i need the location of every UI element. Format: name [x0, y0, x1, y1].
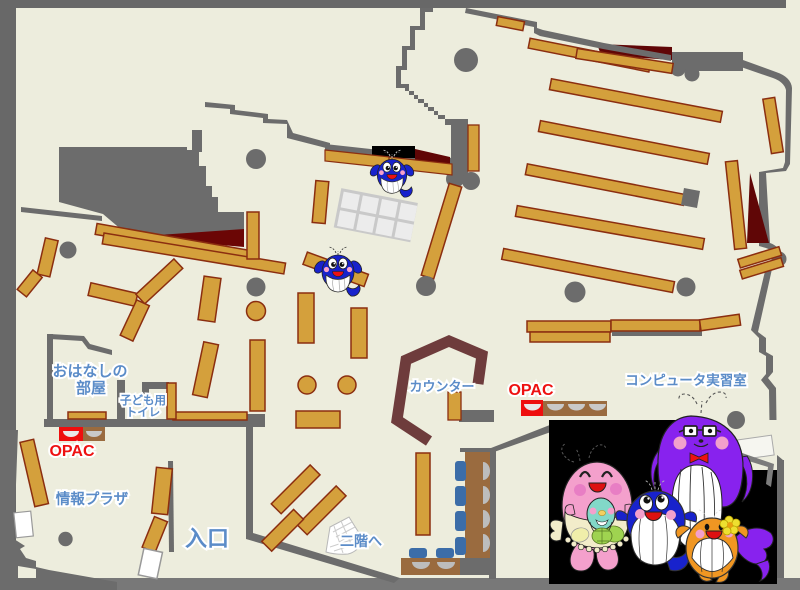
- svg-text:カウンター: カウンター: [409, 379, 474, 394]
- svg-text:子ども用: 子ども用: [120, 394, 166, 407]
- svg-text:OPAC: OPAC: [508, 382, 553, 399]
- svg-text:OPAC: OPAC: [49, 443, 94, 460]
- svg-text:情報プラザ: 情報プラザ: [56, 490, 129, 508]
- svg-text:コンピュータ実習室: コンピュータ実習室: [625, 372, 747, 388]
- svg-text:部屋: 部屋: [76, 379, 106, 397]
- svg-text:おはなしの: おはなしの: [52, 363, 127, 380]
- svg-text:入口: 入口: [185, 526, 229, 551]
- svg-text:トイレ: トイレ: [126, 406, 161, 419]
- svg-text:二階へ: 二階へ: [340, 533, 382, 549]
